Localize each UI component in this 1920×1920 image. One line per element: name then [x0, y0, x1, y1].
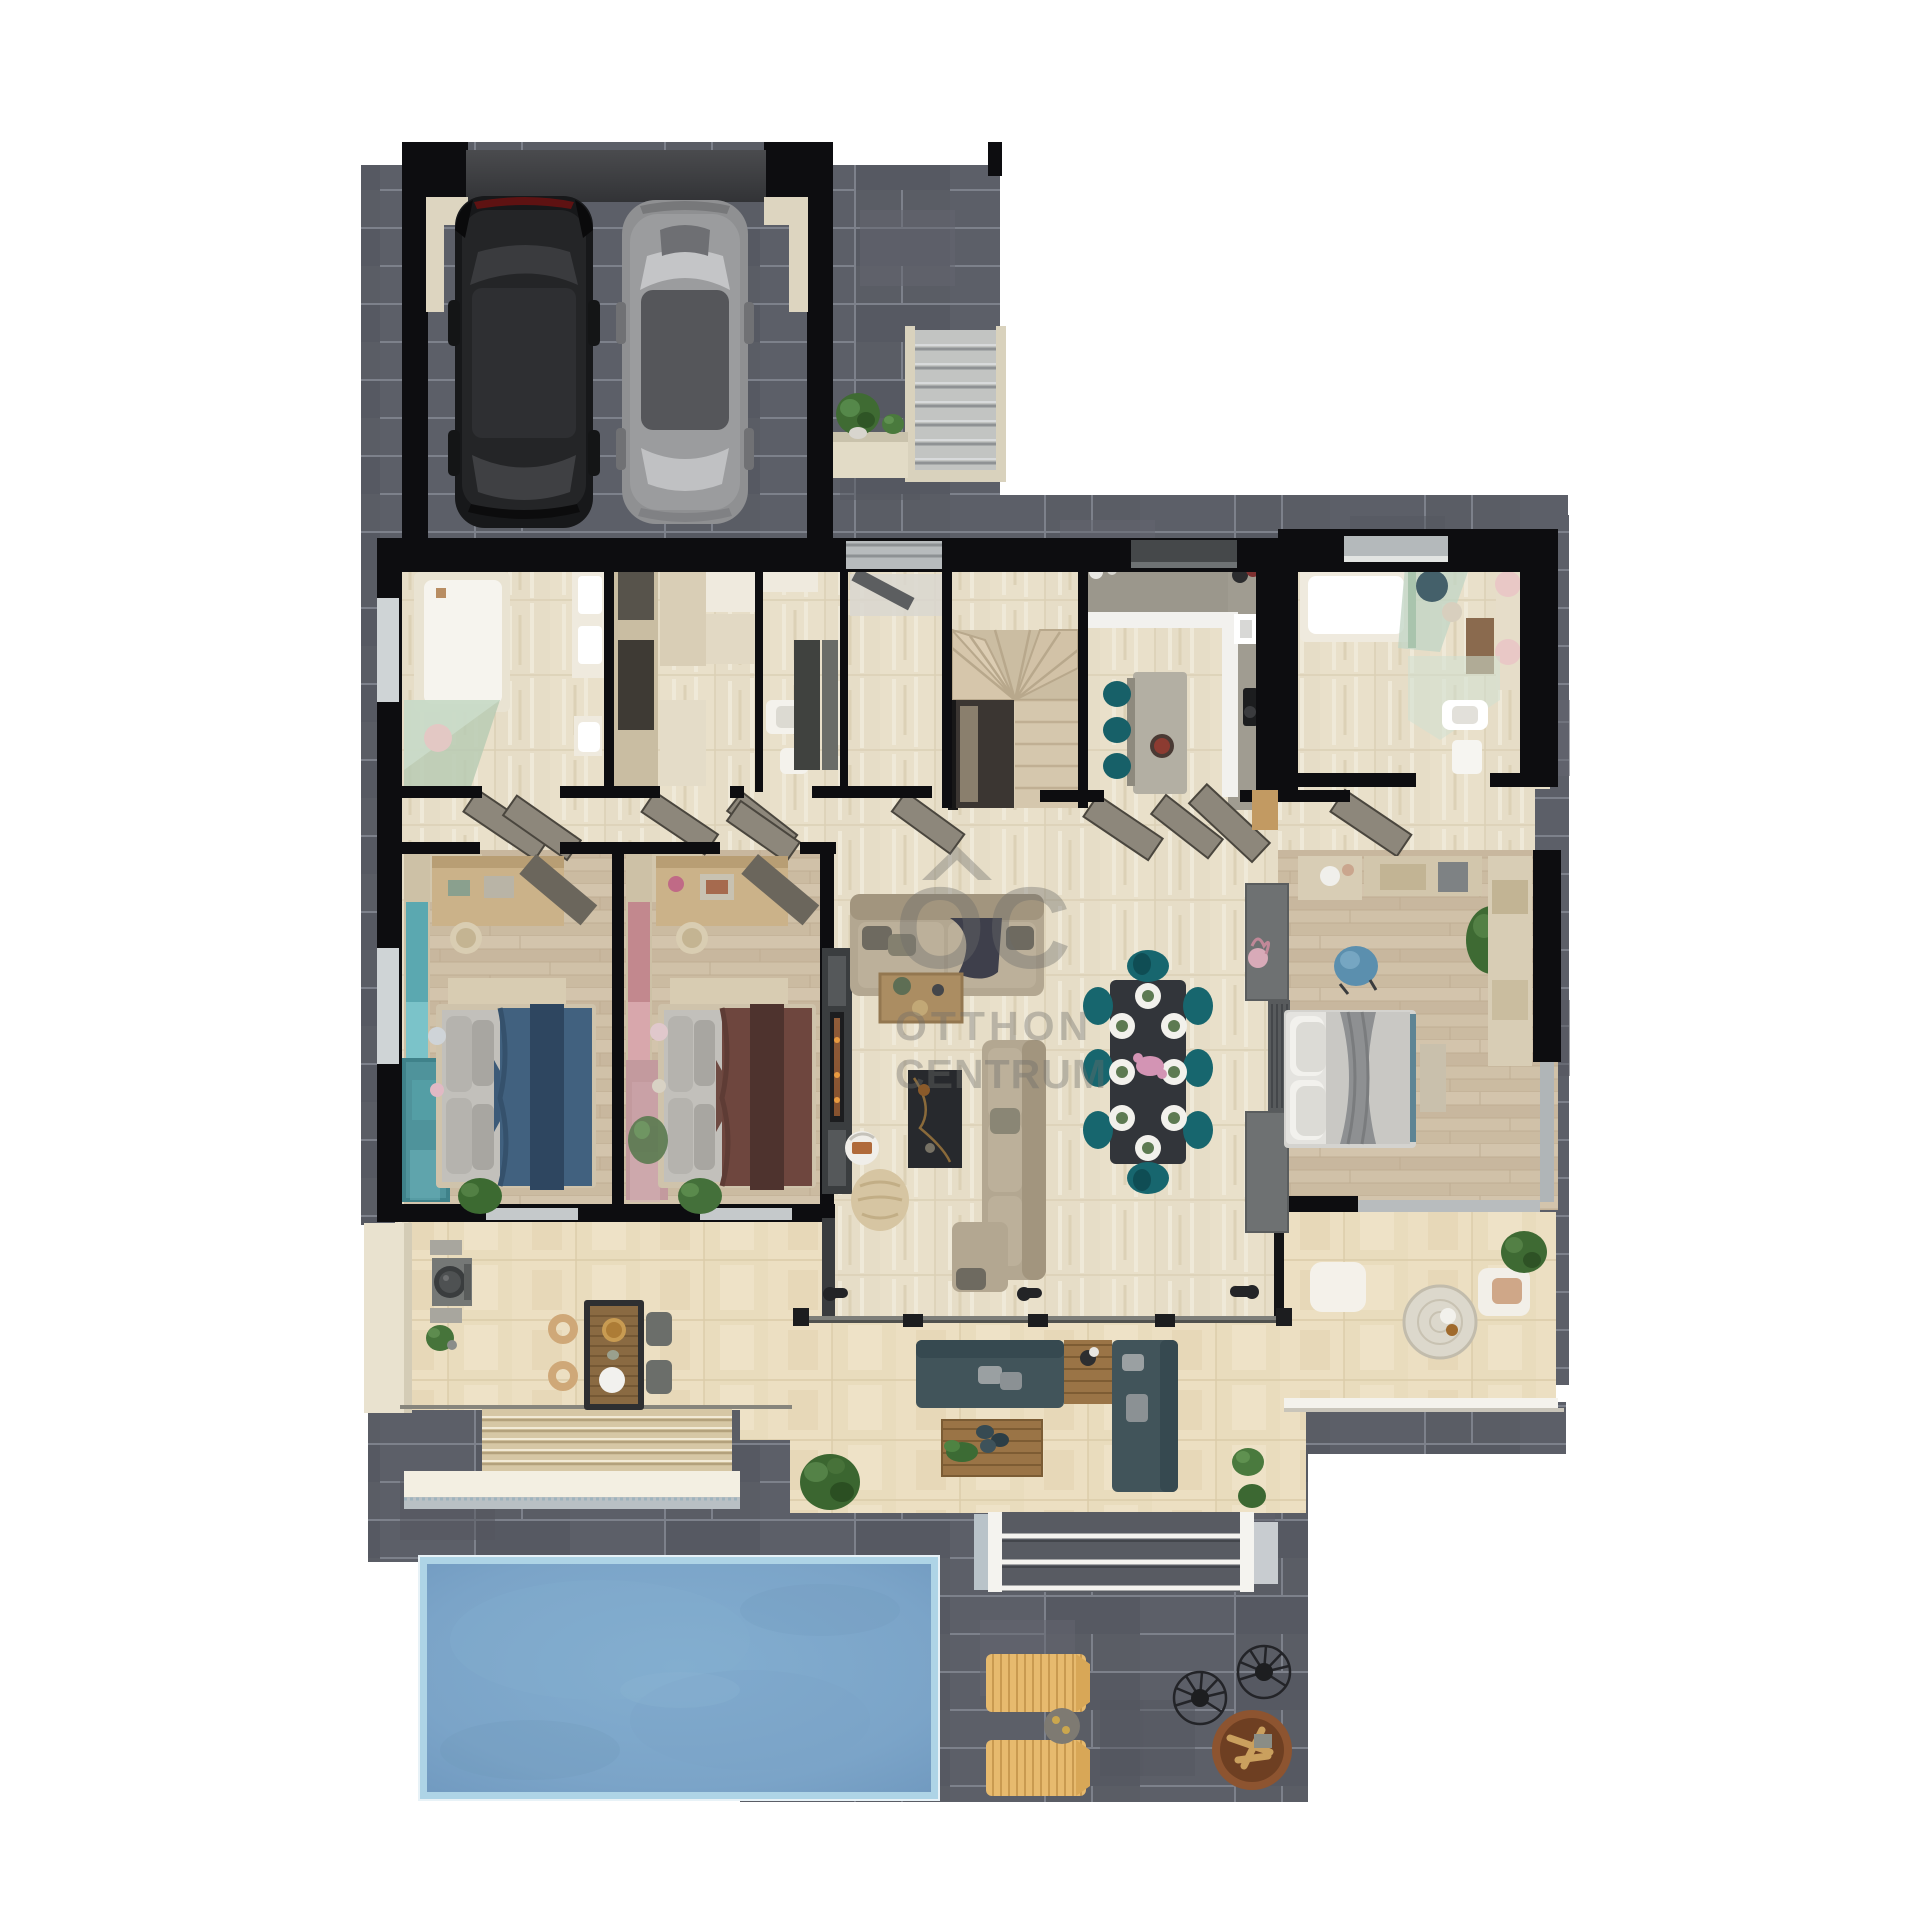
svg-text:OTTHON: OTTHON — [895, 1003, 1092, 1049]
svg-text:CENTRUM: CENTRUM — [895, 1051, 1107, 1097]
svg-text:OC: OC — [895, 863, 1073, 993]
